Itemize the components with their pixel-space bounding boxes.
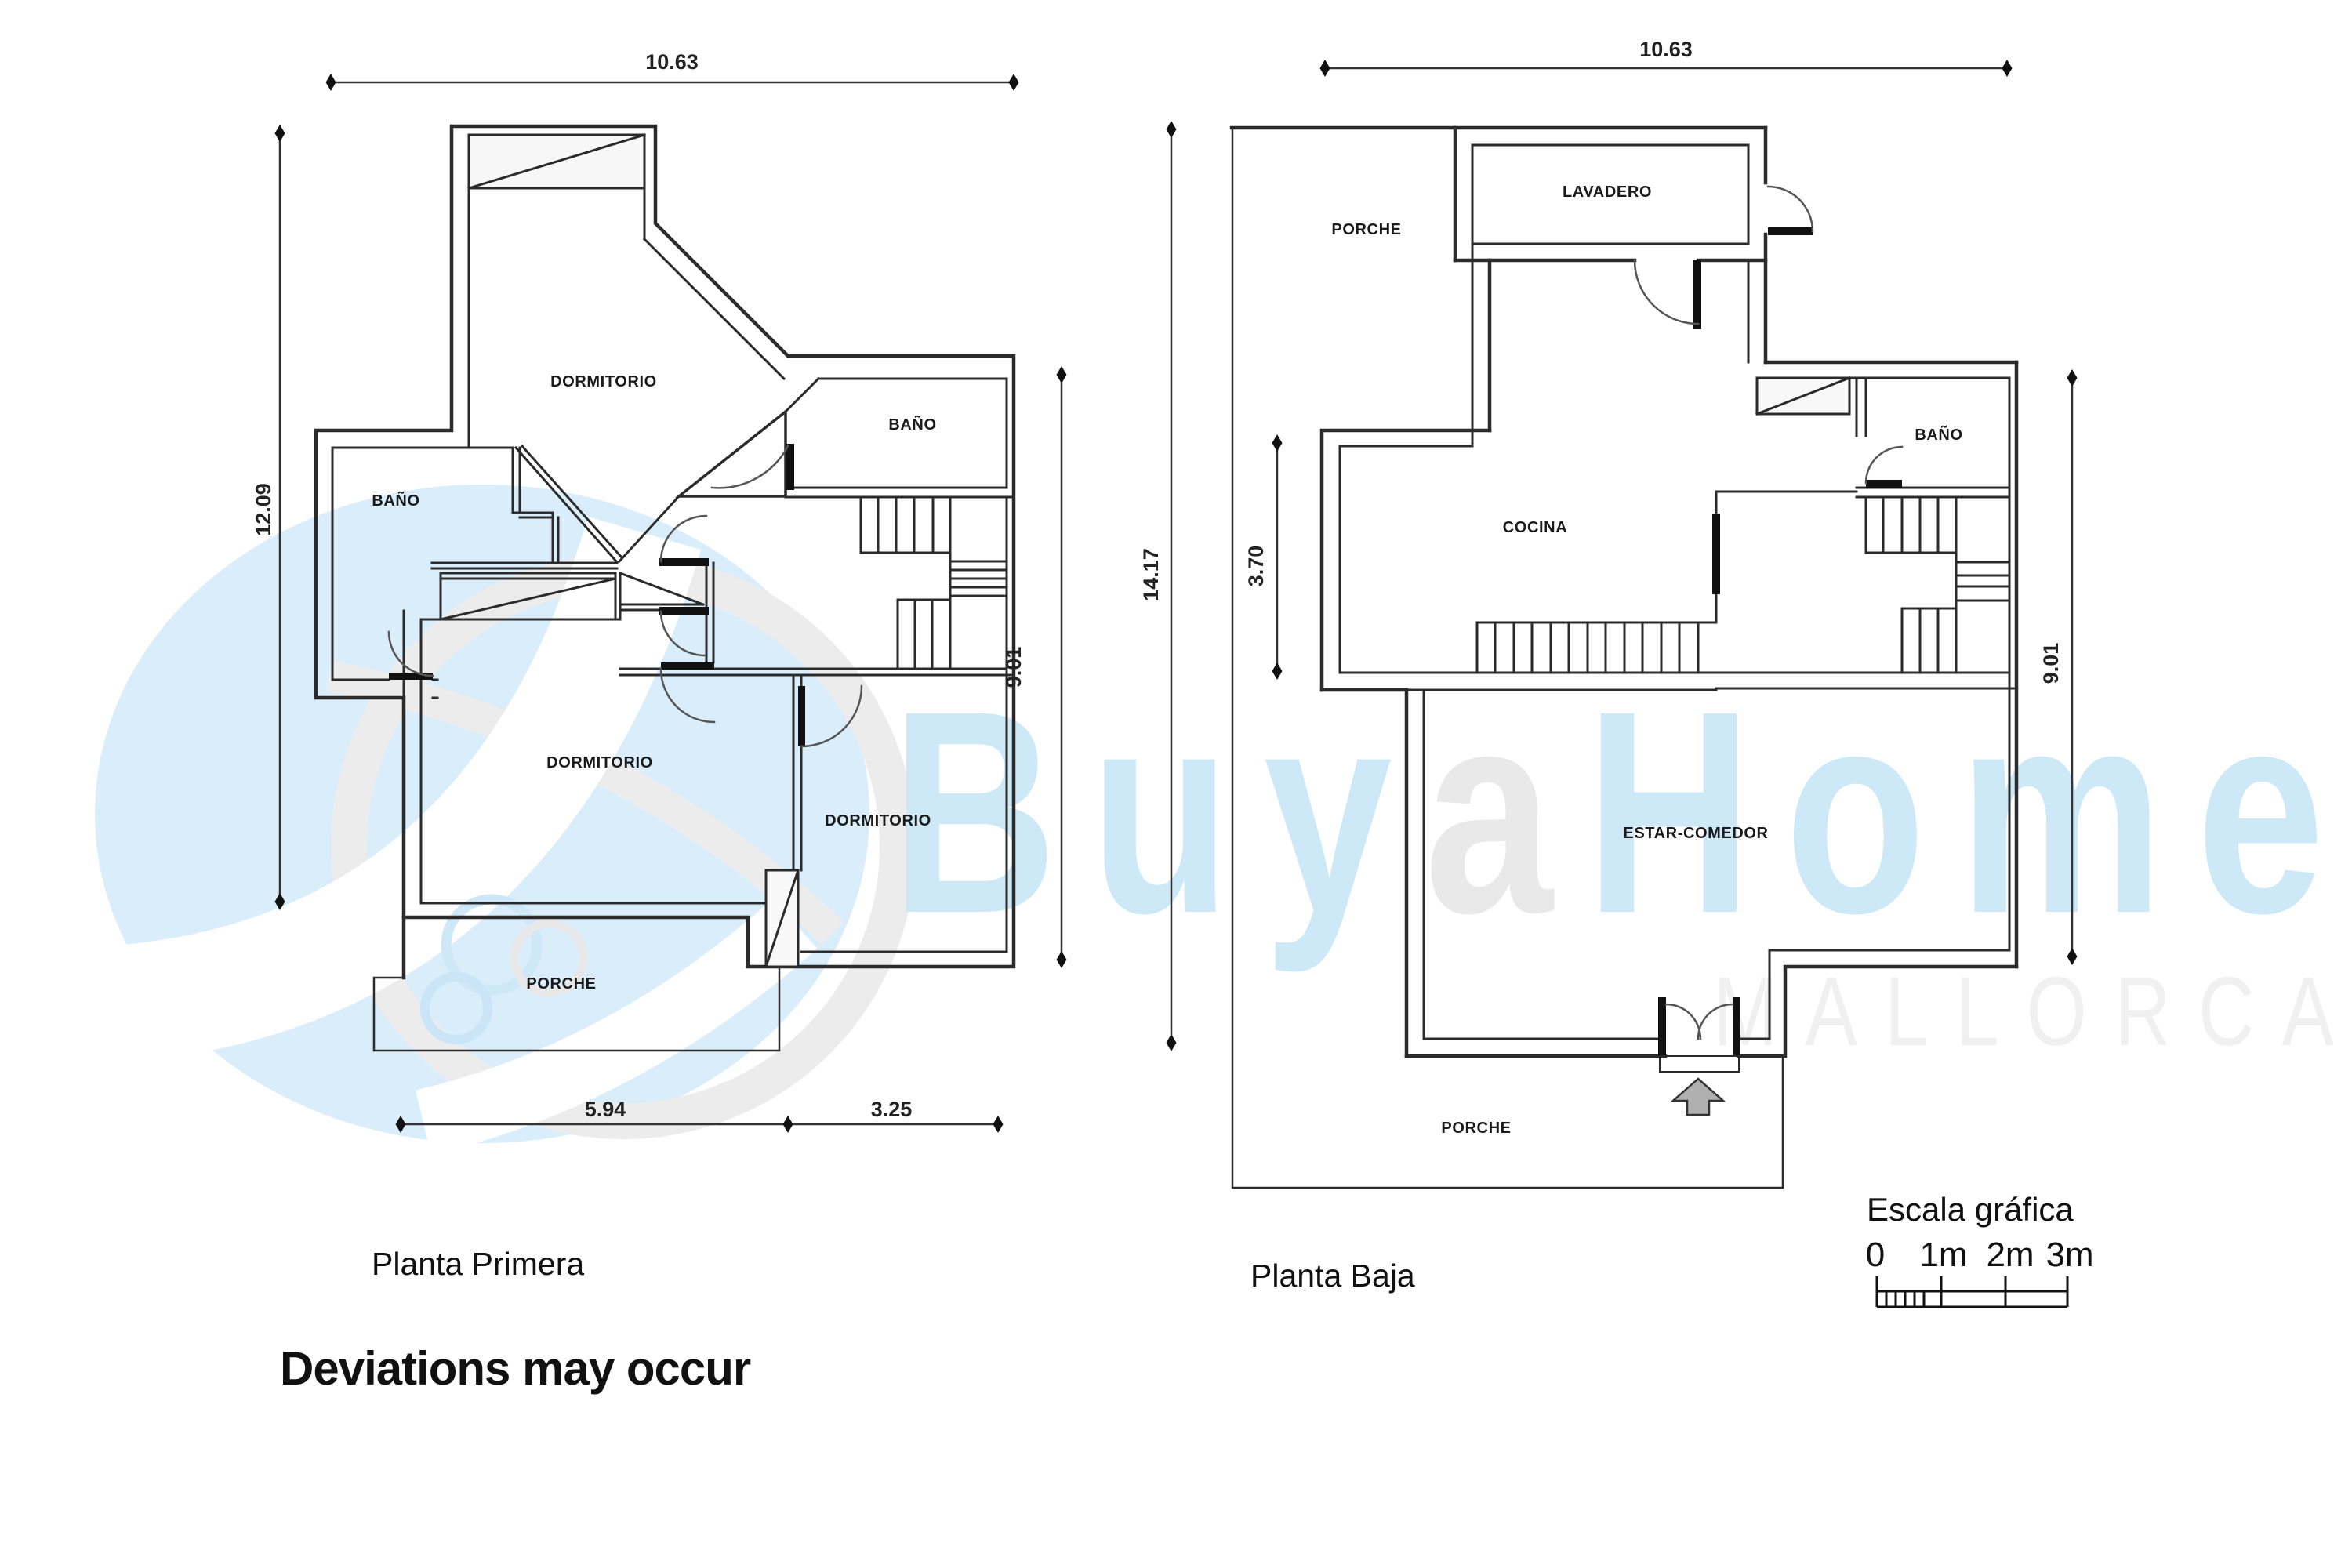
svg-text:PORCHE: PORCHE	[526, 975, 596, 993]
svg-text:3.70: 3.70	[1244, 546, 1268, 587]
svg-text:ESTAR-COMEDOR: ESTAR-COMEDOR	[1623, 825, 1768, 842]
svg-text:1m: 1m	[1919, 1236, 1967, 1274]
svg-text:Planta Baja: Planta Baja	[1250, 1258, 1415, 1294]
svg-text:12.09: 12.09	[252, 483, 275, 536]
svg-text:PORCHE: PORCHE	[1331, 221, 1401, 238]
svg-text:BAÑO: BAÑO	[1915, 426, 1962, 444]
svg-text:Planta Primera: Planta Primera	[372, 1246, 584, 1282]
svg-text:LAVADERO: LAVADERO	[1563, 183, 1652, 201]
svg-text:PORCHE: PORCHE	[1441, 1120, 1511, 1137]
svg-text:DORMITORIO: DORMITORIO	[546, 754, 653, 771]
svg-text:Escala gráfica: Escala gráfica	[1867, 1191, 2074, 1228]
svg-text:10.63: 10.63	[645, 50, 699, 74]
svg-text:9.01: 9.01	[2039, 643, 2063, 684]
svg-text:COCINA: COCINA	[1503, 519, 1568, 536]
svg-text:14.17: 14.17	[1139, 548, 1163, 601]
svg-text:DORMITORIO: DORMITORIO	[550, 373, 657, 390]
svg-text:2m: 2m	[1986, 1236, 2034, 1274]
svg-text:Deviations may occur: Deviations may occur	[280, 1342, 751, 1395]
svg-text:10.63: 10.63	[1639, 38, 1693, 61]
svg-text:DORMITORIO: DORMITORIO	[825, 812, 931, 829]
svg-text:0: 0	[1866, 1236, 1885, 1274]
svg-text:9.01: 9.01	[1002, 647, 1025, 688]
svg-text:3.25: 3.25	[871, 1098, 913, 1121]
svg-text:BAÑO: BAÑO	[372, 492, 419, 510]
svg-text:5.94: 5.94	[585, 1098, 626, 1121]
svg-text:3m: 3m	[2045, 1236, 2093, 1274]
svg-text:BAÑO: BAÑO	[888, 416, 936, 434]
